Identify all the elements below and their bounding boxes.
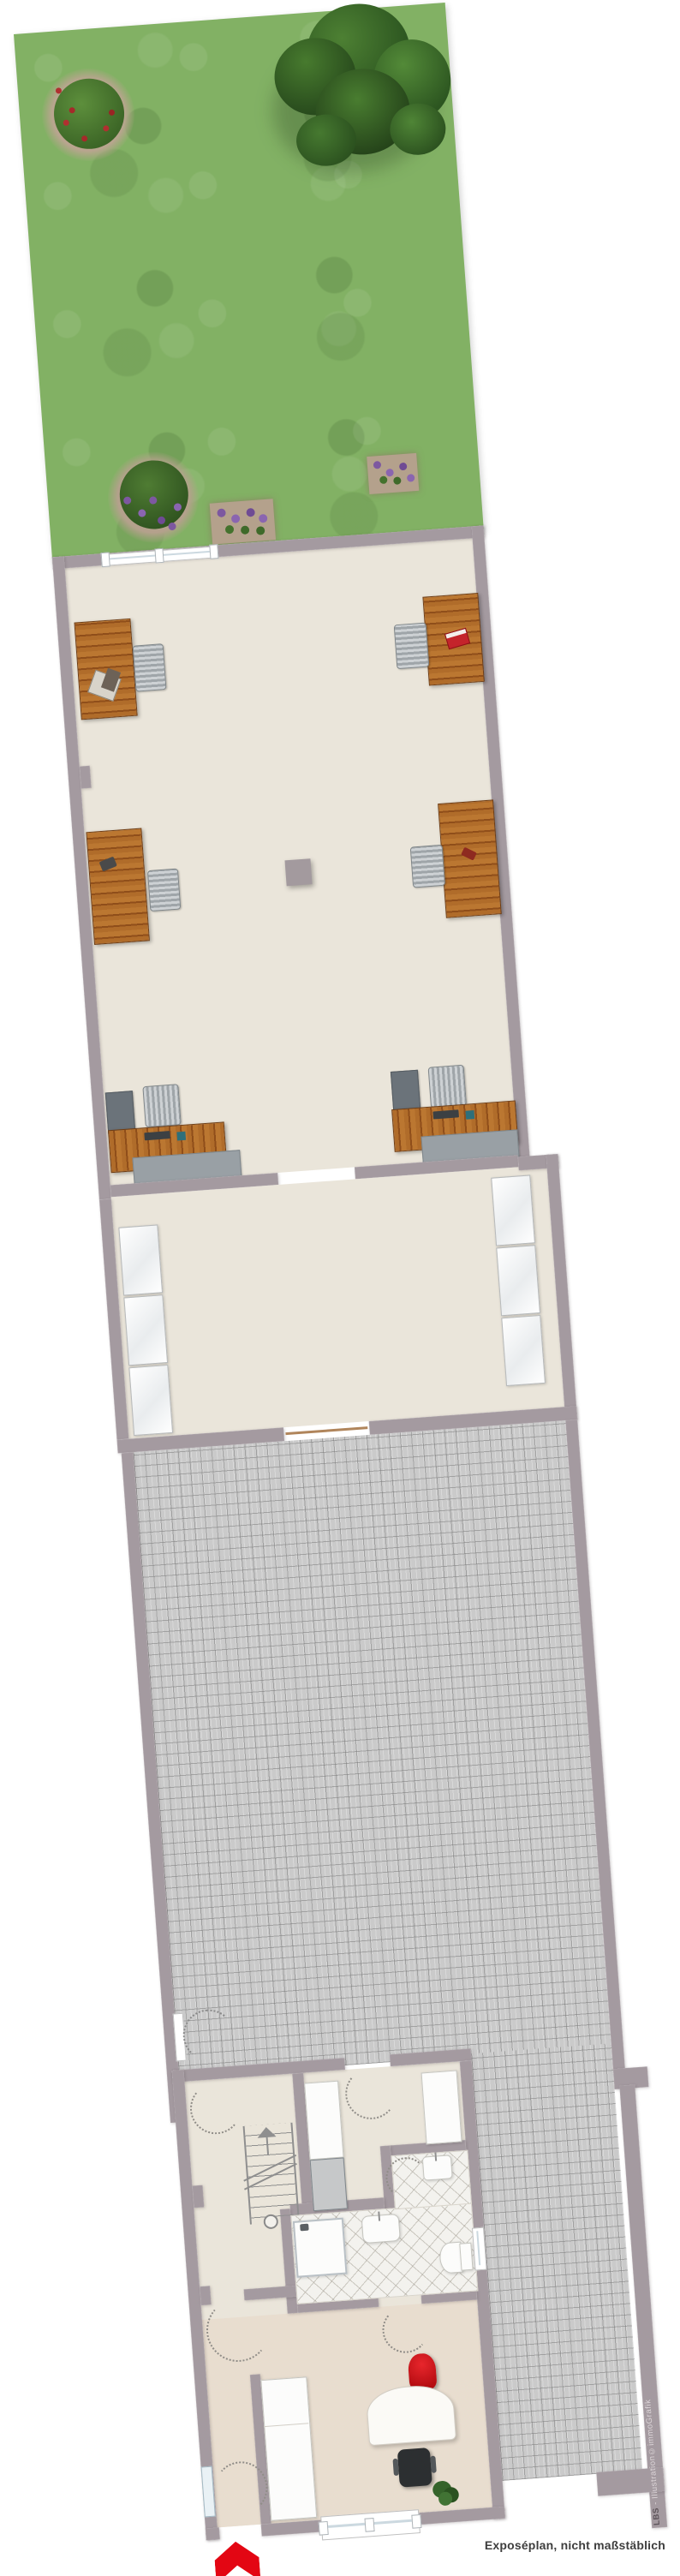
door-threshold (285, 1426, 367, 1435)
window-post (209, 544, 218, 559)
toilet-tank (459, 2243, 473, 2271)
plan-caption: Exposéplan, nicht maßstäblich (485, 2538, 665, 2552)
monitor-icon (465, 1110, 474, 1120)
cabinet (421, 2070, 462, 2144)
pillar (284, 858, 312, 886)
sideboard-white (123, 1294, 168, 1366)
office-chair (428, 1065, 467, 1109)
cabinet (391, 1070, 421, 1113)
window-post (364, 2518, 374, 2532)
sideboard-white (118, 1224, 163, 1295)
window-post (154, 548, 164, 564)
desk (86, 828, 149, 945)
entrance-arrow-icon (213, 2540, 260, 2576)
watermark-brand: LBS (651, 2507, 661, 2526)
shower-head-icon (300, 2224, 309, 2232)
floorplan-page: LBS - Illustration©immoGrafik Exposéplan… (0, 0, 680, 2576)
wall-stub (200, 2286, 212, 2305)
office-chair (147, 869, 181, 912)
floor-plan: LBS - Illustration©immoGrafik (14, 0, 680, 2567)
staircase (243, 2123, 300, 2225)
office-chair (142, 1084, 181, 1127)
office-chair (394, 623, 430, 670)
sideboard-white (491, 1174, 535, 1246)
cabinet (105, 1091, 135, 1133)
wall-stub (192, 2185, 204, 2208)
sideboard-white (496, 1245, 540, 1316)
sideboard-white (128, 1365, 173, 1436)
office-chair (410, 845, 445, 888)
window-post (101, 552, 110, 567)
sideboard-white (501, 1315, 546, 1386)
office-chair (133, 643, 167, 691)
wall-pillar-stub (80, 766, 92, 789)
wardrobe-lower (310, 2157, 348, 2211)
window-post (411, 2514, 421, 2529)
rear-wall-bottom-left (206, 2527, 220, 2540)
window-post (319, 2521, 329, 2536)
wardrobe (304, 2081, 343, 2161)
office-chair-black (397, 2447, 432, 2488)
courtyard-paving (134, 1420, 611, 2077)
washbasin-icon (361, 2214, 401, 2244)
monitor-icon (176, 1132, 186, 1141)
desk (74, 619, 137, 720)
